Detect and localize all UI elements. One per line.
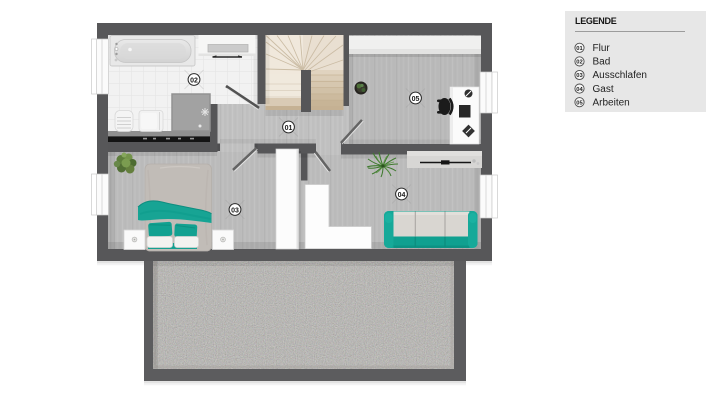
svg-text:05: 05	[576, 100, 583, 106]
svg-text:Arbeiten: Arbeiten	[593, 97, 630, 108]
svg-text:02: 02	[576, 60, 582, 66]
svg-text:03: 03	[231, 208, 239, 215]
svg-text:02: 02	[190, 78, 198, 85]
svg-text:05: 05	[412, 96, 420, 103]
svg-text:01: 01	[285, 125, 293, 132]
svg-text:Gast: Gast	[593, 84, 614, 95]
svg-text:04: 04	[398, 192, 406, 199]
svg-text:01: 01	[576, 46, 583, 52]
svg-text:Ausschlafen: Ausschlafen	[593, 70, 647, 81]
svg-text:Bad: Bad	[593, 57, 611, 68]
svg-text:04: 04	[576, 87, 583, 93]
svg-text:03: 03	[576, 73, 583, 79]
svg-text:Flur: Flur	[593, 43, 611, 54]
